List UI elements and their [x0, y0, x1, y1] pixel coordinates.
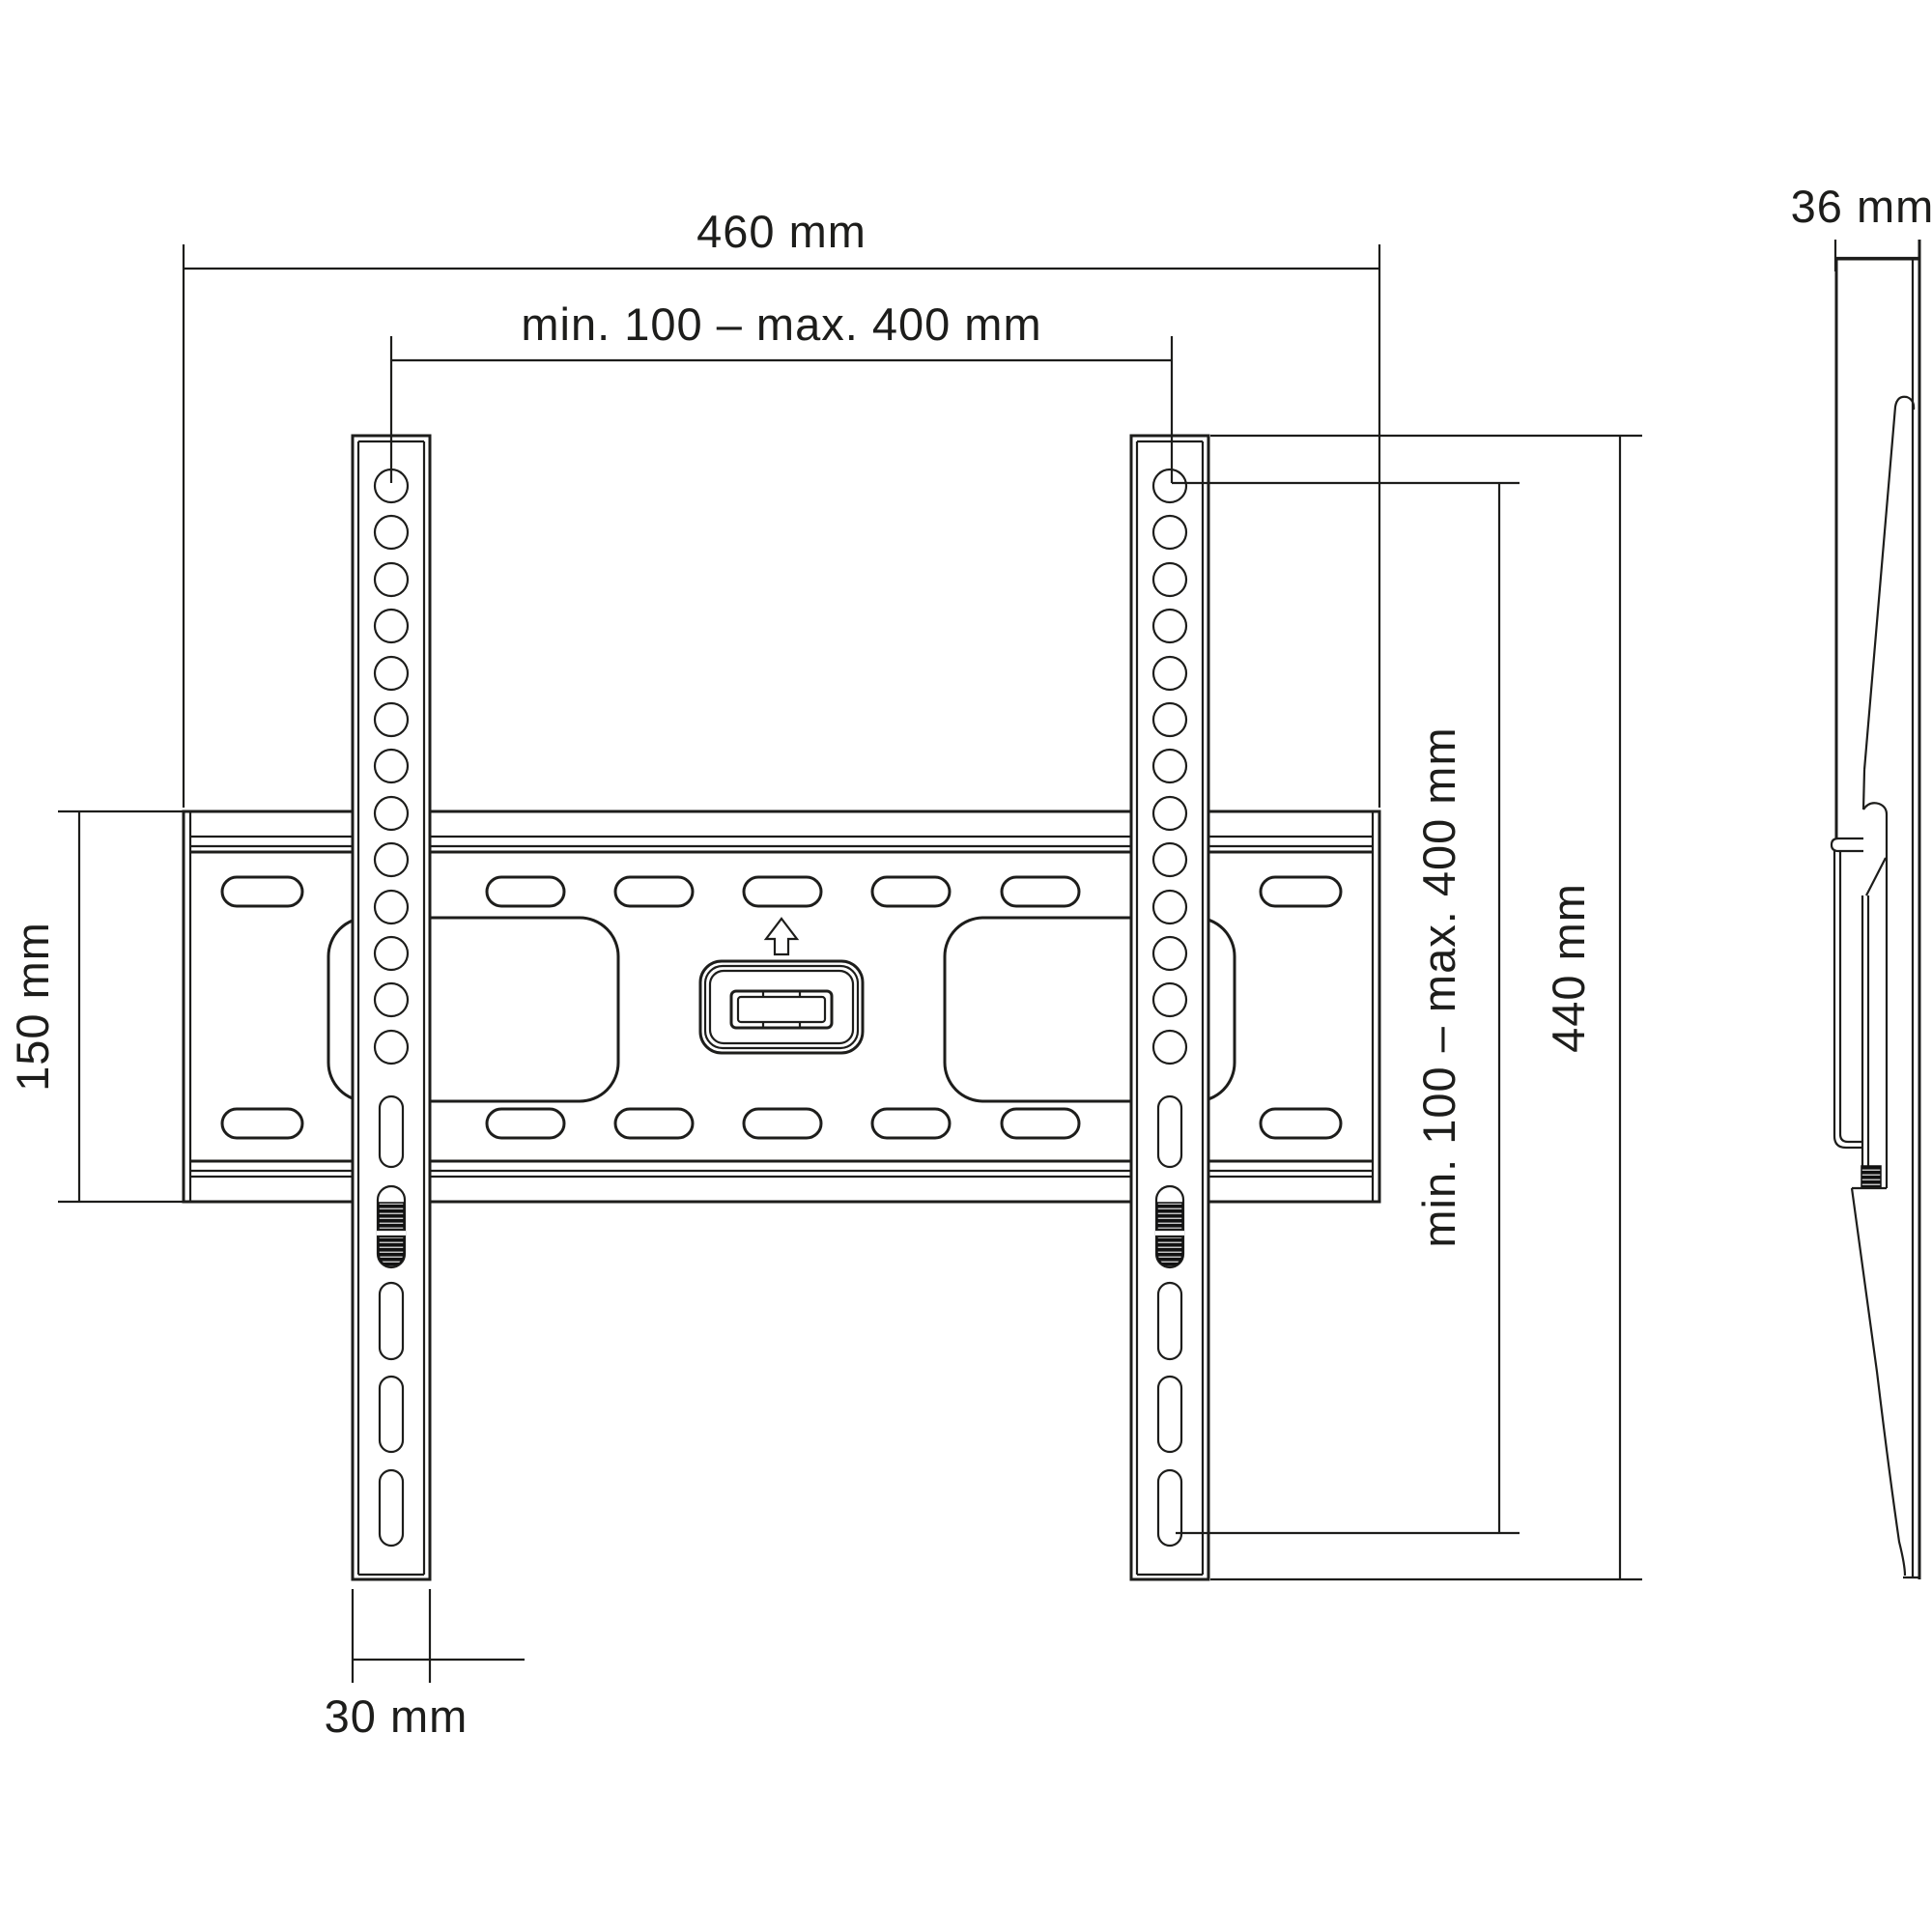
center-lock [700, 961, 863, 1053]
dimensions: 460 mm min. 100 – max. 400 mm 36 mm 150 … [7, 181, 1932, 1742]
dim-plate-height-label: 150 mm [7, 922, 58, 1092]
page: 460 mm min. 100 – max. 400 mm 36 mm 150 … [0, 0, 1932, 1932]
dim-plate-width-label: 460 mm [696, 206, 867, 257]
front-view [184, 436, 1379, 1579]
dim-vesa-horizontal-label: min. 100 – max. 400 mm [521, 298, 1041, 350]
side-screw-threads [1861, 1166, 1881, 1187]
dim-depth [1835, 240, 1919, 271]
side-view [1832, 240, 1920, 1579]
dim-rail-height-label: 440 mm [1543, 883, 1594, 1053]
up-arrow-icon [766, 919, 797, 954]
left-rail [353, 436, 430, 1579]
dim-rail-width-label: 30 mm [325, 1690, 469, 1742]
technical-drawing: 460 mm min. 100 – max. 400 mm 36 mm 150 … [0, 0, 1932, 1932]
dim-vesa-vertical [1172, 483, 1520, 1533]
dim-depth-label: 36 mm [1791, 181, 1932, 232]
dim-vesa-horizontal [391, 336, 1172, 483]
dim-vesa-vertical-label: min. 100 – max. 400 mm [1413, 726, 1464, 1247]
dim-rail-width [353, 1589, 525, 1683]
dim-plate-height [58, 811, 185, 1202]
right-rail [1131, 436, 1208, 1579]
